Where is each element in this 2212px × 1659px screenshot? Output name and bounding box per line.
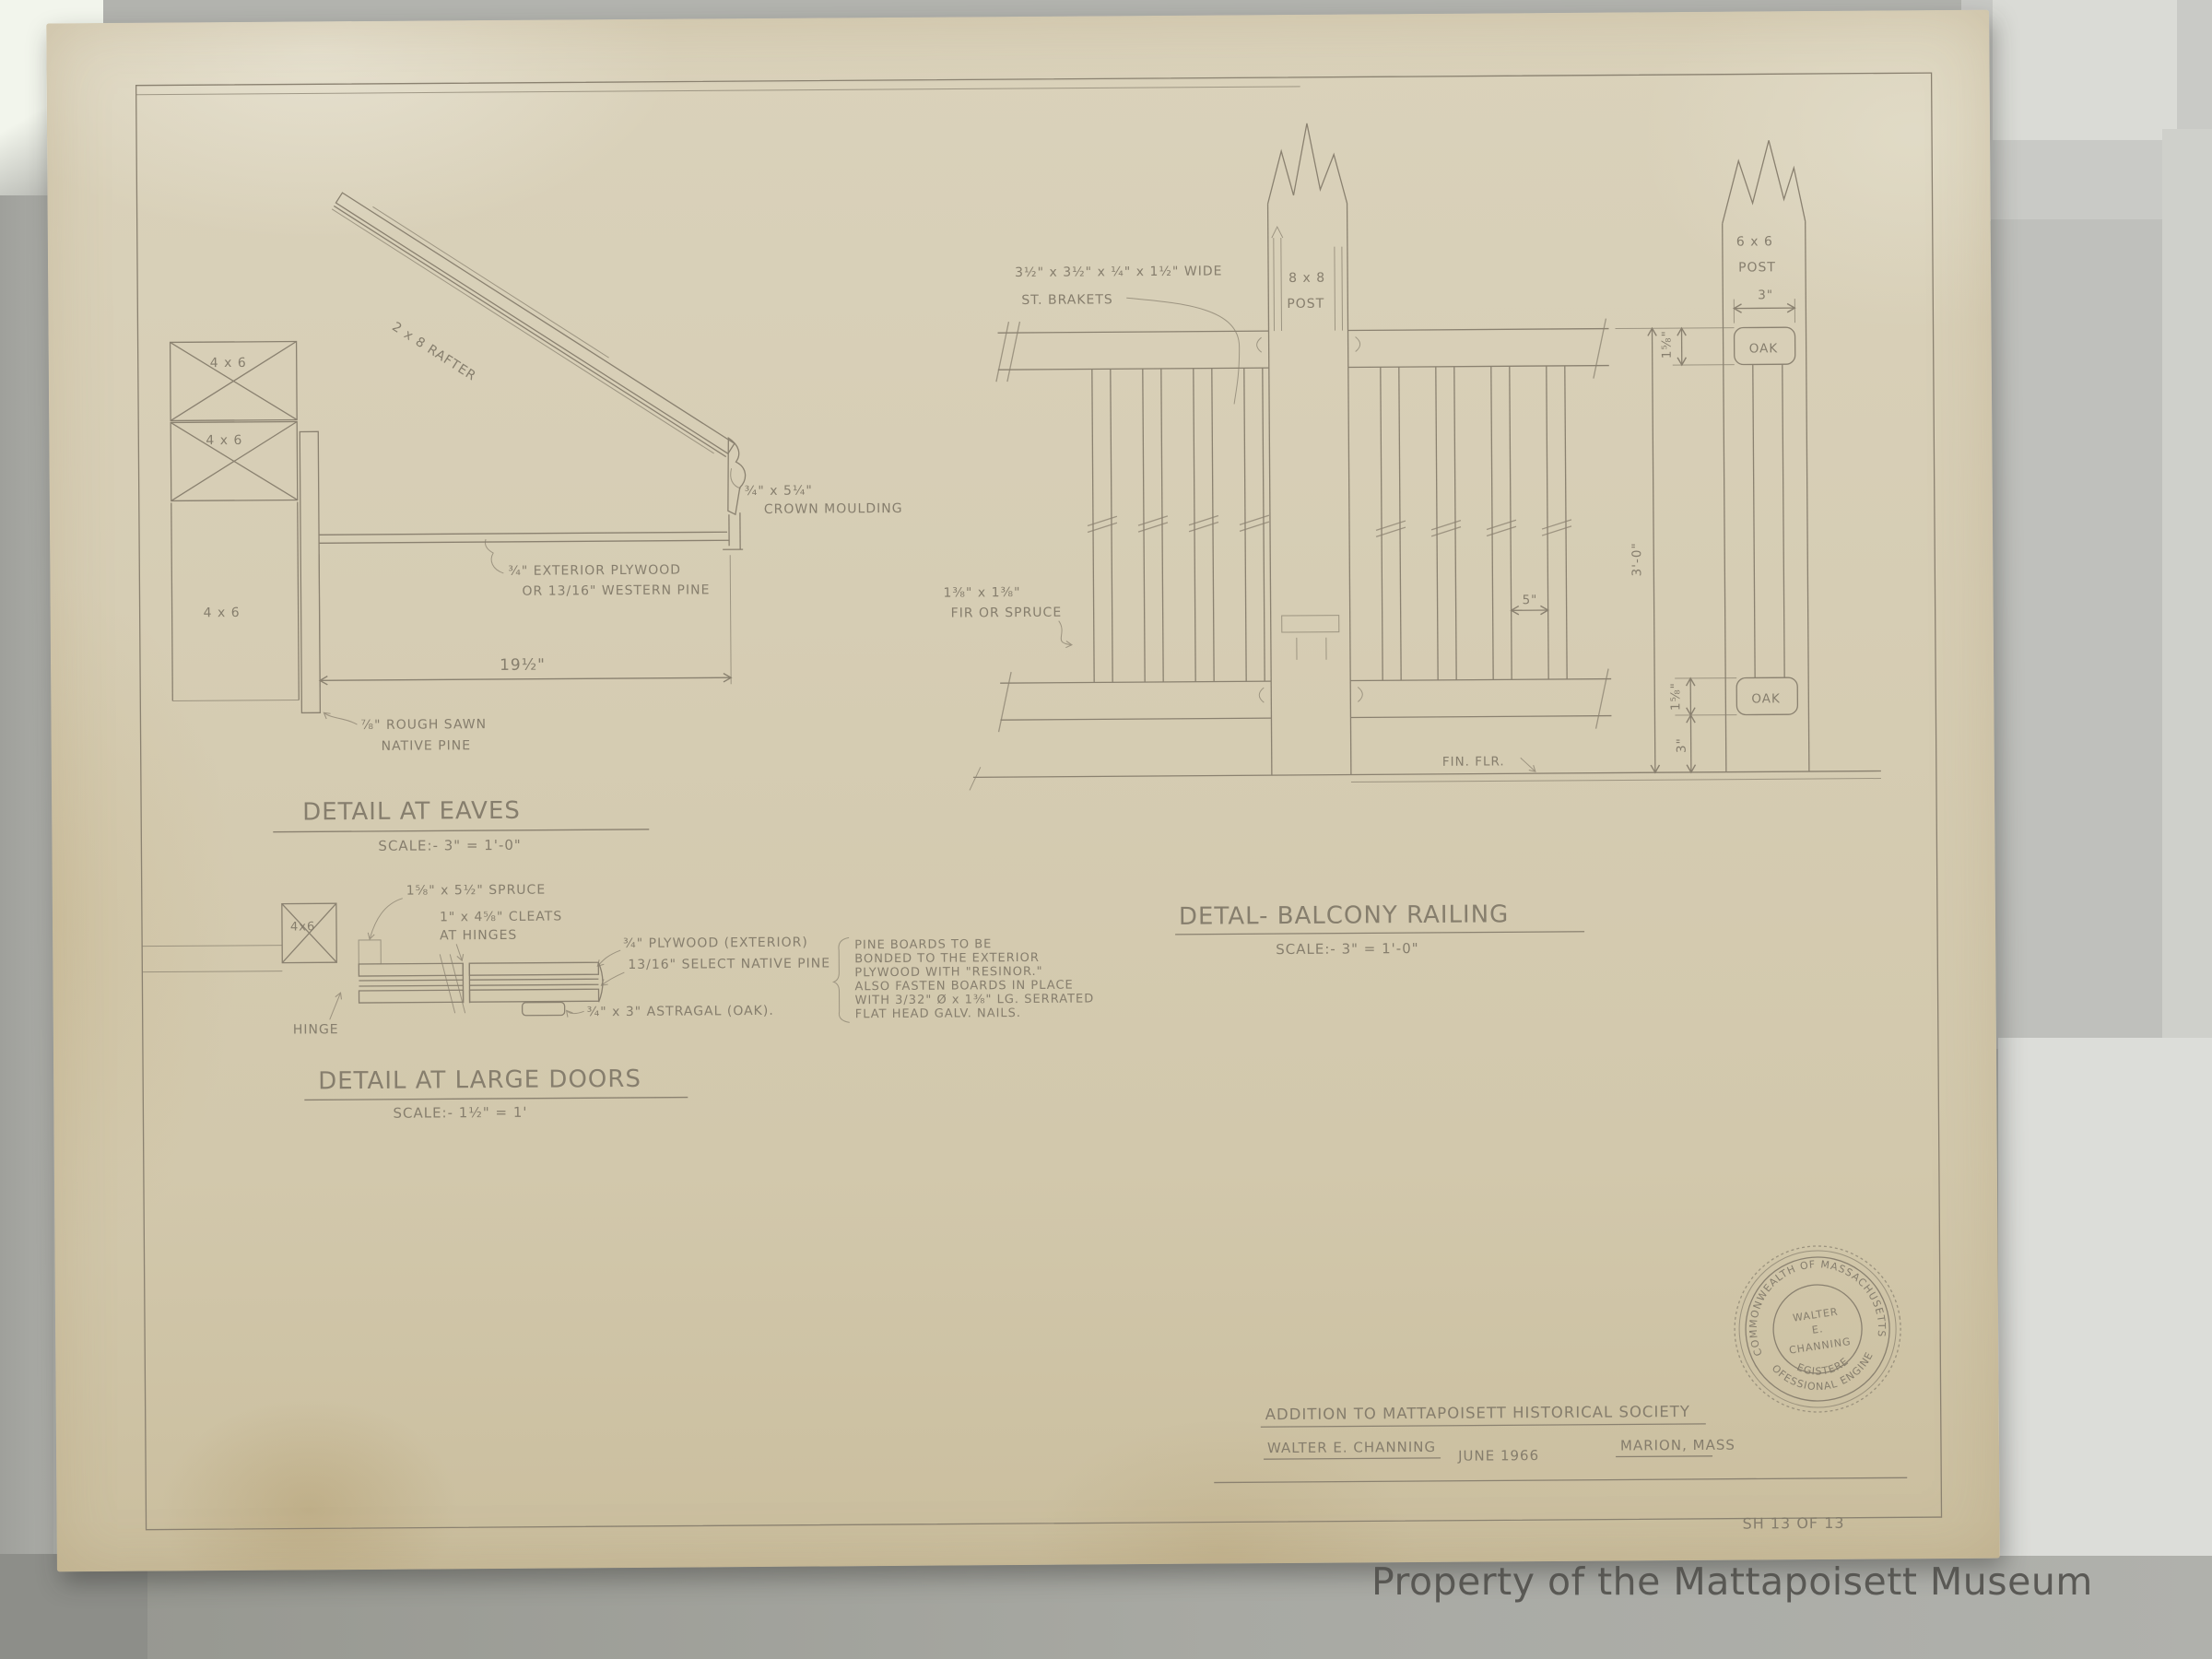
stamp-name-3: CHANNING (1788, 1335, 1852, 1357)
pencil-drawing: 2 x 8 RAFTER ¾" x 5¼" CROWN MOULDING (46, 10, 2000, 1572)
crown-leader (731, 468, 741, 488)
balcony-railing-detail: 8 x 8 POST 3½" x 3½" x ¼" x 1½" WIDE ST.… (940, 120, 1882, 960)
wall-sheathing (300, 431, 320, 712)
crown-moulding-profile (722, 438, 746, 549)
crown-label: CROWN MOULDING (764, 501, 903, 517)
cleats-note-2: AT HINGES (440, 928, 517, 944)
location-underline (1616, 1456, 1712, 1457)
title-block: ADDITION TO MATTAPOISETT HISTORICAL SOCI… (1214, 1401, 1908, 1535)
fir-leader (1059, 621, 1072, 645)
note-line-5: WITH 3/32" Ø x 1⅜" LG. SERRATED (855, 992, 1095, 1007)
project-title: ADDITION TO MATTAPOISETT HISTORICAL SOCI… (1265, 1403, 1690, 1423)
soffit-dim-label: 19½" (500, 656, 546, 675)
rafter-section (332, 189, 736, 460)
cleats-leader (456, 944, 462, 960)
title-block-rule (1214, 1477, 1907, 1482)
door-pine-note: 13/16" SELECT NATIVE PINE (628, 956, 830, 972)
post8-label-1: 8 x 8 (1288, 271, 1325, 286)
hinge-leader (330, 993, 341, 1019)
balusters-right (1375, 366, 1572, 680)
background-far-right-sliver (2162, 129, 2212, 1060)
post-8x8 (1255, 123, 1363, 775)
spruce-note: 1⅝" x 5½" SPRUCE (406, 883, 547, 899)
astragal-leader (567, 1010, 584, 1013)
stamp-name-1: WALTER (1792, 1306, 1839, 1324)
dim-3ft-label: 3'-0" (1630, 542, 1644, 576)
door-plywood-leader (597, 950, 620, 966)
door-leaf-left (359, 939, 463, 1003)
project-underline (1261, 1424, 1706, 1427)
sheathing-note-1: ⅞" ROUGH SAWN (360, 717, 487, 733)
balcony-title: DETAL- BALCONY RAILING (1179, 900, 1510, 931)
engineer-name: WALTER E. CHANNING (1267, 1439, 1436, 1456)
drawing-sheet: 2 x 8 RAFTER ¾" x 5¼" CROWN MOULDING (46, 10, 2000, 1572)
fin-flr-arrow (1521, 758, 1535, 771)
oak-top-label: OAK (1749, 341, 1779, 356)
rafter-label: 2 x 8 RAFTER (389, 320, 478, 384)
balcony-scale: SCALE:- 3" = 1'-0" (1276, 940, 1419, 958)
brackets-note-1: 3½" x 3½" x ¼" x 1½" WIDE (1015, 264, 1222, 280)
soffit-boards (319, 532, 729, 543)
stamp-name-2: E. (1811, 1323, 1824, 1336)
door-leaf-right (469, 962, 603, 1003)
door-pine-leader (601, 972, 624, 985)
dim-158-top (1673, 328, 1735, 365)
plywood-note-2: OR 13/16" WESTERN PINE (522, 582, 710, 598)
eaves-detail: 2 x 8 RAFTER ¾" x 5¼" CROWN MOULDING (169, 185, 905, 856)
balcony-title-underline (1175, 932, 1584, 935)
background-top-right-highlight (1993, 0, 2177, 140)
note-line-2: BONDED TO THE EXTERIOR (854, 951, 1040, 966)
floor-line (970, 761, 1881, 791)
stamp-arc-bottom-outer-text: PROFESSIONAL ENGINEER (46, 10, 1880, 1572)
door-joint (463, 963, 469, 1003)
svg-text:PROFESSIONAL ENGINEER: PROFESSIONAL ENGINEER (46, 10, 1880, 1572)
note-line-1: PINE BOARDS TO BE (854, 937, 992, 952)
fir-note-2: FIR OR SPRUCE (951, 606, 1063, 621)
location: MARION, MASS (1620, 1437, 1735, 1454)
post6-label-2: POST (1738, 260, 1776, 275)
plywood-note-1: ¾" EXTERIOR PLYWOOD (508, 563, 681, 579)
balusters-left (1087, 368, 1270, 682)
large-doors-detail: 4x6 (142, 878, 1095, 1123)
post-label-bottom: 4 x 6 (204, 606, 241, 620)
svg-text:REGISTERED: REGISTERED (46, 12, 1853, 1571)
engineer-stamp: COMMONWEALTH OF MASSACHUSETTS PROFESSION… (46, 10, 1912, 1572)
drawing-date: JUNE 1966 (1457, 1447, 1539, 1465)
dim-5-label: 5" (1523, 593, 1538, 607)
cleats-note-1: 1" x 4⅝" CLEATS (440, 909, 562, 924)
note-line-3: PLYWOOD WITH "RESINOR." (854, 965, 1042, 980)
astragal-note: ¾" x 3" ASTRAGAL (OAK). (587, 1004, 774, 1019)
door-frame-post (142, 903, 337, 971)
dim-3in-top-label: 3" (1758, 288, 1773, 302)
doors-title-underline (304, 1098, 688, 1100)
astragal (523, 1002, 565, 1015)
plywood-leader (485, 539, 503, 573)
museum-watermark: Property of the Mattapoisett Museum (1371, 1559, 2093, 1604)
fin-flr-label: FIN. FLR. (1442, 754, 1505, 769)
dim-bottom-stack (1675, 678, 1737, 772)
spruce-leader (370, 899, 403, 939)
note-line-6: FLAT HEAD GALV. NAILS. (855, 1006, 1021, 1021)
post6-label-1: 6 x 6 (1736, 234, 1773, 249)
top-rail (998, 329, 1609, 371)
pine-boards-note: PINE BOARDS TO BE BONDED TO THE EXTERIOR… (833, 935, 1094, 1022)
wall-posts (171, 341, 300, 700)
sheathing-note-2: NATIVE PINE (382, 738, 472, 754)
eaves-title-underline (273, 829, 649, 832)
post8-label-2: POST (1287, 297, 1324, 312)
doors-title: DETAIL AT LARGE DOORS (318, 1065, 641, 1095)
crown-size-label: ¾" x 5¼" (745, 484, 813, 500)
engineer-underline (1264, 1458, 1441, 1459)
post-label-mid: 4 x 6 (206, 433, 242, 448)
dim-158-bottom-label: 1⅝" (1668, 682, 1683, 711)
photo-of-architectural-drawing: 2 x 8 RAFTER ¾" x 5¼" CROWN MOULDING (0, 0, 2212, 1659)
hinge-label: HINGE (293, 1022, 339, 1037)
oak-bottom-label: OAK (1751, 691, 1781, 706)
dim-3in-bottom-label: 3" (1675, 737, 1689, 753)
dim-158-top-label: 1⅝" (1660, 330, 1675, 359)
brackets-leader (1126, 297, 1240, 405)
note-line-4: ALSO FASTEN BOARDS IN PLACE (854, 979, 1073, 994)
doors-scale: SCALE:- 1½" = 1' (393, 1104, 527, 1122)
stamp-arc-bottom-inner-text: REGISTERED (46, 12, 1853, 1571)
sheathing-leader (324, 712, 357, 724)
fir-note-1: 1⅜" x 1⅜" (943, 585, 1020, 601)
post-label-top: 4 x 6 (210, 356, 247, 371)
sheet-number: SH 13 OF 13 (1743, 1514, 1845, 1533)
eaves-scale: SCALE:- 3" = 1'-0" (378, 837, 522, 854)
door-plywood-note: ¾" PLYWOOD (EXTERIOR) (623, 935, 808, 951)
eaves-title: DETAIL AT EAVES (302, 797, 521, 827)
brackets-note-2: ST. BRAKETS (1021, 292, 1113, 308)
background-left-strip (0, 0, 53, 1659)
door-frame-label: 4x6 (290, 920, 315, 934)
bottom-rail (1000, 679, 1611, 721)
dim-3ft (1616, 328, 1676, 772)
